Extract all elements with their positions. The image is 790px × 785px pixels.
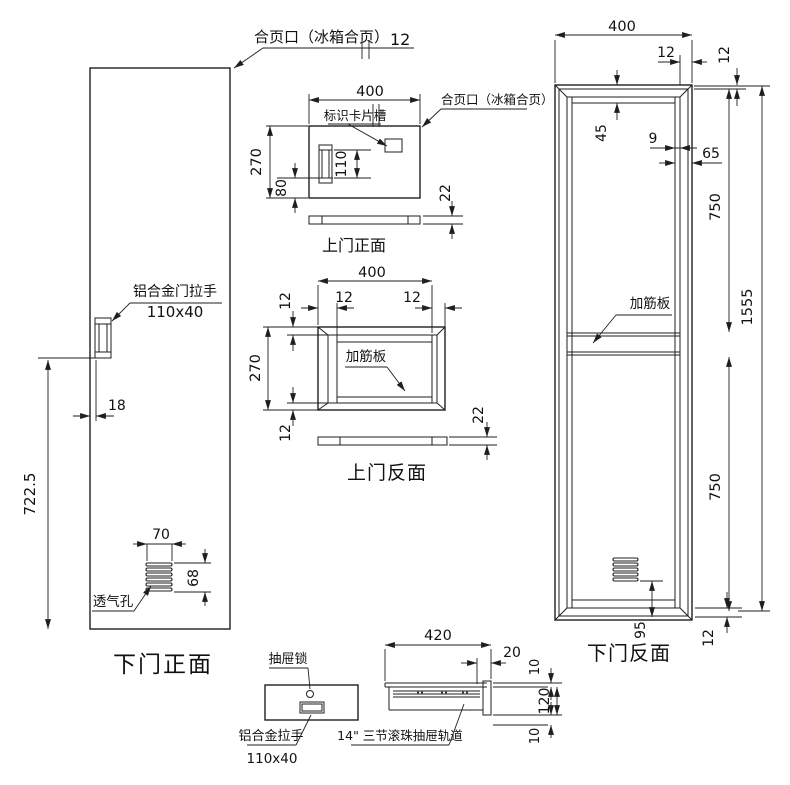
hinge-upper-label: 合页口（冰箱合页） xyxy=(441,92,554,107)
top-hinge-callout: 合页口（冰箱合页） 12 xyxy=(234,28,414,68)
dim-lb-12-bottom: 12 xyxy=(701,629,717,647)
rib-upper-label: 加筋板 xyxy=(346,348,387,365)
dim-uf-110: 110 xyxy=(334,151,350,178)
dim-ub-12-right: 12 xyxy=(403,290,421,306)
drawer-handle-label: 铝合金拉手 xyxy=(238,728,303,744)
caption-upper-front: 上门正面 xyxy=(322,236,386,255)
dim-dr-20: 20 xyxy=(503,645,521,661)
dim-lb-400: 400 xyxy=(608,19,636,35)
dim-dr-10-top: 10 xyxy=(528,659,543,676)
dim-uf-270: 270 xyxy=(249,148,265,176)
dim-lb-1555: 1555 xyxy=(740,289,756,326)
upper-door-front-panel xyxy=(309,126,420,198)
view-lower-door-back: 加筋板 95 45 400 12 12 xyxy=(555,19,770,665)
dim-lb-45: 45 xyxy=(594,124,610,142)
drawer-handle-shape xyxy=(300,702,324,713)
dim-ub-22: 22 xyxy=(471,406,487,424)
upper-door-back-edge-view xyxy=(318,437,447,445)
dim-lb-95: 95 xyxy=(633,621,649,639)
dim-68: 68 xyxy=(186,569,202,587)
upper-door-front-edge-view xyxy=(309,216,420,224)
view-upper-door-front: 合页口（冰箱合页） 标识卡片槽 400 270 80 xyxy=(249,84,554,255)
dim-ub-270: 270 xyxy=(248,354,264,382)
dim-lb-12-top: 12 xyxy=(657,45,675,61)
dim-lb-9: 9 xyxy=(649,131,658,147)
hinge-top-dim: 12 xyxy=(390,30,410,49)
upper-door-handle-shape xyxy=(319,145,332,183)
dim-uf-400: 400 xyxy=(356,84,384,100)
dim-lb-750-lower: 750 xyxy=(708,473,724,501)
dim-ub-400: 400 xyxy=(358,265,386,281)
door-handle-shape xyxy=(95,318,111,358)
drawer-handle-size-label: 110x40 xyxy=(247,751,298,767)
caption-upper-back: 上门反面 xyxy=(347,462,427,484)
vent-label: 透气孔 xyxy=(93,594,134,610)
dim-uf-80: 80 xyxy=(274,179,290,197)
vent-slots-back xyxy=(613,558,638,581)
door-handle-size-label: 110x40 xyxy=(147,303,204,321)
drawer-rail-shape xyxy=(393,691,480,697)
dim-70: 70 xyxy=(152,527,170,543)
engineering-drawing-canvas: 合页口（冰箱合页） 12 铝合金门拉手 110x40 722.5 18 xyxy=(0,0,790,785)
rib-lower-label: 加筋板 xyxy=(630,295,671,312)
vent-slots-front xyxy=(146,563,172,591)
drawer-rail-label: 14" 三节滚珠抽屉轨道 xyxy=(337,728,463,743)
dim-lb-750-upper: 750 xyxy=(708,193,724,221)
view-drawer-front: 抽屉锁 铝合金拉手 110x40 xyxy=(238,651,358,767)
caption-lower-front: 下门正面 xyxy=(113,652,213,678)
cabinet-door-drawing: 合页口（冰箱合页） 12 铝合金门拉手 110x40 722.5 18 xyxy=(0,0,790,785)
drawer-rail-end-cap xyxy=(483,681,491,715)
dim-dr-420: 420 xyxy=(424,628,452,644)
card-slot-label: 标识卡片槽 xyxy=(324,108,387,123)
dim-ub-12-top: 12 xyxy=(278,292,294,310)
dim-lb-12-edge: 12 xyxy=(717,46,733,64)
door-handle-label: 铝合金门拉手 xyxy=(133,284,217,300)
view-drawer-side: 420 20 10 120 10 14" 三节滚珠抽屉轨道 xyxy=(337,628,562,745)
view-lower-door-front: 铝合金门拉手 110x40 722.5 18 70 xyxy=(21,68,230,678)
dim-dr-10-bottom: 10 xyxy=(528,728,543,745)
view-upper-door-back: 400 12 12 12 270 12 加筋板 xyxy=(248,265,497,484)
dim-18: 18 xyxy=(108,398,126,414)
drawer-lock-shape xyxy=(307,691,314,698)
dim-uf-22: 22 xyxy=(438,184,454,202)
dim-ub-12-bottom: 12 xyxy=(278,424,294,442)
card-slot-shape xyxy=(385,139,402,152)
dim-722-5: 722.5 xyxy=(21,473,39,516)
drawer-lock-label: 抽屉锁 xyxy=(268,651,307,667)
dim-ub-12-left: 12 xyxy=(335,290,353,306)
caption-lower-back: 下门反面 xyxy=(587,641,671,665)
dim-lb-65: 65 xyxy=(702,146,720,162)
